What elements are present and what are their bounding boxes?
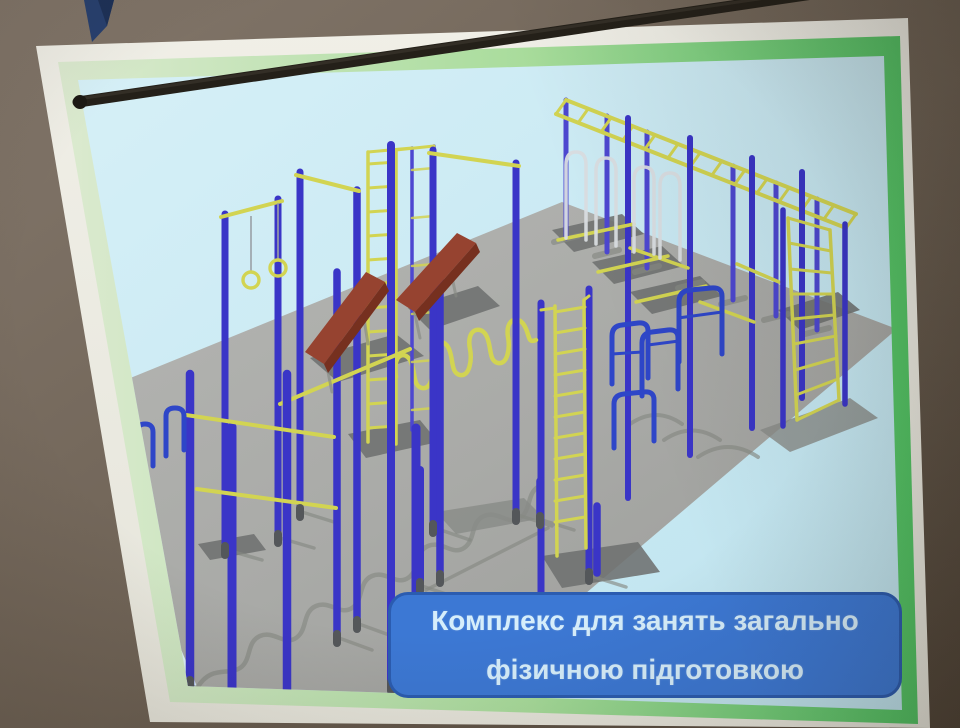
rail-end-cap [73, 95, 87, 109]
caption-line-2: фізичною підготовкою [486, 646, 804, 694]
caption-box: Комплекс для занять загально фізичною пі… [388, 592, 902, 698]
photo-of-projection-screen: Комплекс для занять загально фізичною пі… [0, 0, 960, 728]
caption-line-1: Комплекс для занять загально [431, 597, 859, 645]
